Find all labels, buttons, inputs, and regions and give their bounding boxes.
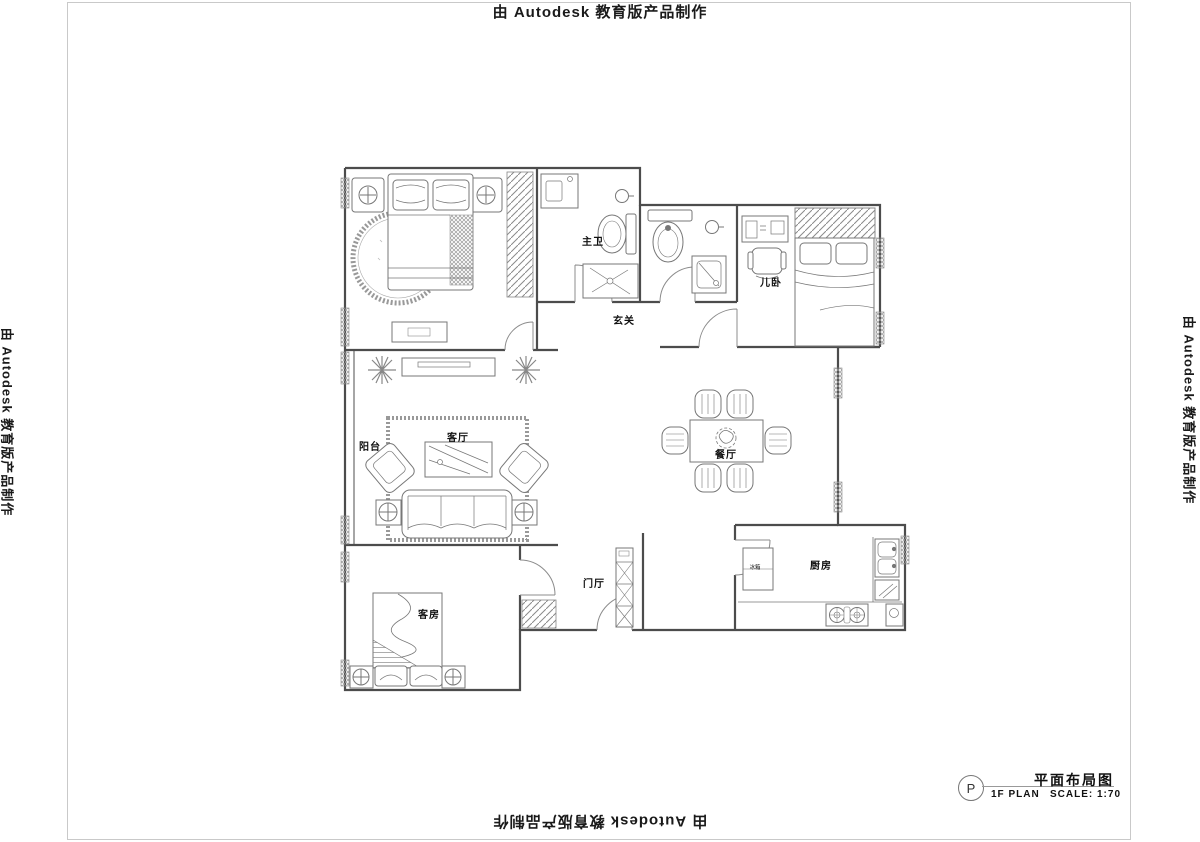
dining-room-furniture [662, 390, 791, 492]
plan-symbol-circle: P [958, 775, 984, 801]
dining-chair-icon [765, 427, 791, 454]
pillow-icon [393, 180, 428, 210]
door-master-bedroom [505, 322, 533, 350]
master-bedroom-furniture [352, 174, 502, 342]
cutting-board-icon [875, 580, 899, 600]
wardrobe-icon [507, 172, 533, 297]
bath2-fixtures [648, 210, 726, 293]
pillow-icon [375, 666, 407, 686]
living-room-furniture [363, 356, 550, 540]
window-icon [341, 178, 349, 208]
foyer-furniture [616, 548, 633, 627]
pillow-icon [800, 243, 831, 264]
guest-room-furniture [350, 593, 465, 688]
label-fridge: 冰箱 [750, 562, 761, 570]
window-icon [341, 308, 349, 346]
dining-chair-icon [662, 427, 688, 454]
dining-chair-icon [695, 464, 721, 492]
window-icon [876, 238, 884, 268]
floor-plan-drawing [0, 0, 1200, 842]
sofa-icon [402, 490, 512, 538]
dining-chair-icon [727, 464, 753, 492]
room-label-balcony: 阳台 [359, 438, 381, 453]
room-label-kids-bedroom: 儿卧 [760, 274, 782, 289]
window-icon [341, 352, 349, 384]
window-icon [901, 536, 909, 564]
window-icon [876, 312, 884, 344]
shower-head-icon [616, 190, 629, 203]
shower-head-icon [706, 221, 719, 234]
room-label-master-bath: 主卫 [582, 233, 604, 248]
armchair-icon [497, 441, 550, 495]
room-label-entry-hall: 玄关 [613, 312, 635, 327]
door-guest-room [520, 560, 555, 595]
flue-icon [886, 604, 903, 626]
door-bath2 [660, 267, 695, 302]
tv-icon [418, 362, 470, 367]
pillow-icon [836, 243, 867, 264]
chair-icon [752, 248, 782, 274]
room-label-living-room: 客厅 [447, 429, 469, 444]
plan-scale: SCALE: 1:70 [1050, 789, 1121, 800]
plant-icon [368, 356, 396, 384]
dining-chair-icon [695, 390, 721, 418]
plant-icon [512, 356, 540, 384]
plan-title: 平面布局图 [1034, 770, 1114, 790]
dining-chair-icon [727, 390, 753, 418]
room-label-foyer: 门厅 [583, 575, 605, 590]
room-label-guest-room: 客房 [418, 606, 440, 621]
plan-code: 1F PLAN [991, 789, 1040, 800]
door-kids-room [699, 309, 737, 347]
window-icon [341, 660, 349, 686]
wardrobe-icon [795, 208, 875, 238]
window-icon [341, 516, 349, 544]
pillow-icon [410, 666, 442, 686]
window-icon [341, 552, 349, 582]
kitchen-fixtures [738, 537, 903, 626]
room-label-dining-room: 餐厅 [715, 446, 737, 461]
window-icon [834, 368, 842, 398]
dresser-icon [392, 322, 447, 342]
drawing-sheet: { "watermark": { "text": "由 Autodesk 教育版… [0, 0, 1200, 842]
pillow-icon [433, 180, 469, 210]
room-label-kitchen: 厨房 [810, 557, 832, 572]
closet-icon [522, 600, 556, 628]
window-icon [834, 482, 842, 512]
